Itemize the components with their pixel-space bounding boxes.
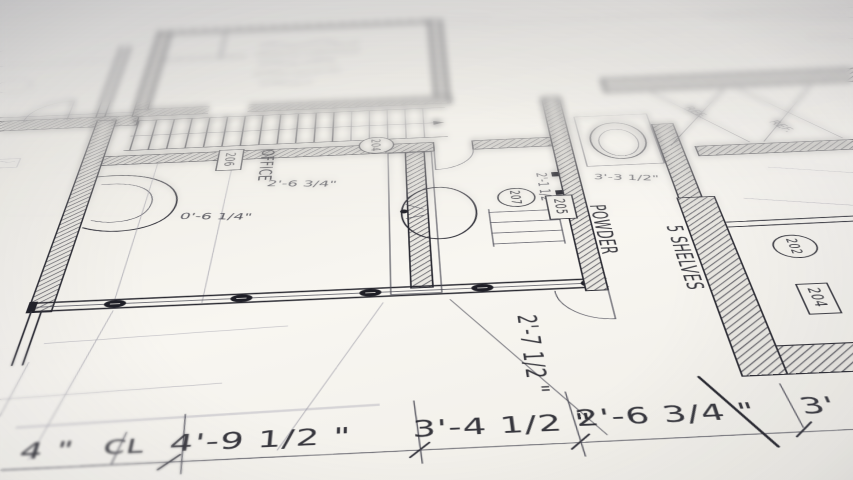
door-opening — [208, 104, 249, 114]
floor-plan-drawing: 206 OFFICE 2'-6 3/4" 0'-6 1/4" 204 — [0, 0, 853, 480]
toilet-fixture — [586, 122, 652, 160]
office-dim-width: 2'-6 3/4" — [265, 179, 338, 189]
room-tag-blurred — [0, 158, 21, 168]
toilet-dim: 3'-3 1/2" — [594, 172, 660, 182]
dim-2-6-threequarter: 2'-6 3/4 " — [573, 398, 761, 432]
room-tag-powder-number: 205 — [550, 198, 572, 215]
door-circle-204-number: 204 — [368, 139, 383, 152]
office-dim-depth: 0'-6 1/4" — [178, 212, 254, 223]
dim-4-9-half: 4'-9 1/2 " — [167, 422, 351, 457]
room-tag-office-number: 206 — [220, 152, 240, 167]
office-door-arc — [434, 149, 475, 169]
top-center-room — [132, 19, 451, 118]
powder-door-arc — [555, 289, 616, 321]
blueprint-photo: 206 OFFICE 2'-6 3/4" 0'-6 1/4" 204 — [0, 0, 853, 480]
ref-label-b: REF. — [766, 119, 798, 134]
dim-partial-left: 4 " — [16, 436, 77, 464]
dim-3ft-partial: 3' — [795, 392, 842, 420]
perspective-layer: 206 OFFICE 2'-6 3/4" 0'-6 1/4" 204 — [0, 0, 853, 480]
camera-tilt-layer: 206 OFFICE 2'-6 3/4" 0'-6 1/4" 204 — [0, 0, 853, 480]
office-room: 206 OFFICE 2'-6 3/4" 0'-6 1/4" 204 — [27, 101, 607, 313]
floor-plan-sheet: 206 OFFICE 2'-6 3/4" 0'-6 1/4" 204 — [0, 0, 853, 480]
right-rooms: REF. REF. 5 SHELVES 202 204 — [601, 63, 853, 378]
door-circle-207-number: 207 — [506, 190, 524, 205]
dim-3-4-half: 3'-4 1/2 " — [412, 408, 596, 443]
door-number-circle-blurred — [0, 80, 35, 94]
illegible-note-block — [251, 40, 360, 85]
stair-direction-line — [131, 123, 436, 136]
closet-door-leaves — [651, 85, 843, 145]
dim-vertical: 2'-7 1/2 " — [511, 314, 556, 394]
stair-direction-arrow — [433, 121, 444, 125]
